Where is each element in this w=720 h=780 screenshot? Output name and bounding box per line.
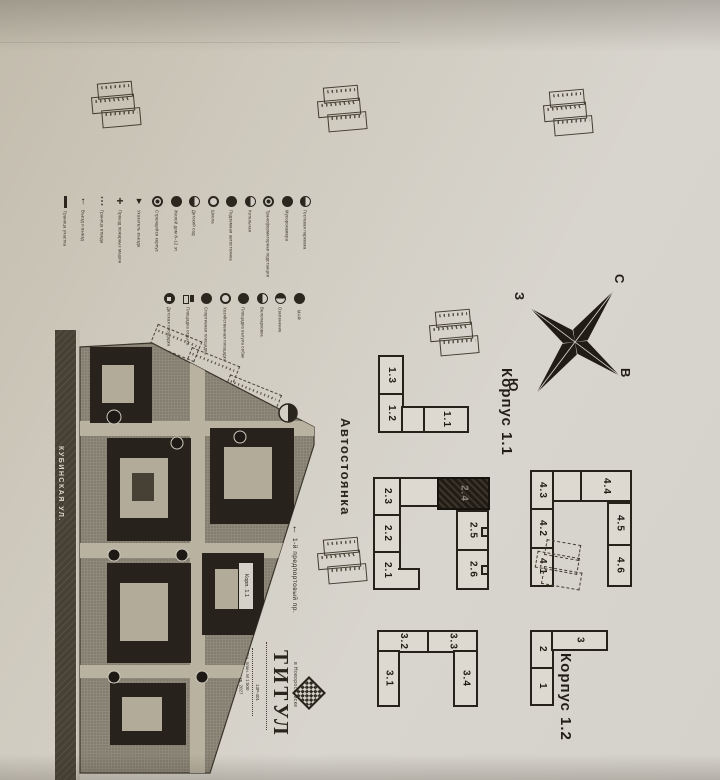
legend-label: Строящийся корпус [154, 210, 159, 252]
plan-marker [171, 437, 183, 449]
unit-cell: 3 [553, 632, 606, 649]
scheme-building2-foot [398, 568, 420, 590]
plan-marker [196, 671, 208, 683]
legend-label: Котельная [247, 210, 252, 232]
scheme-building2-left: 2.3 2.2 2.1 [373, 477, 401, 590]
unit-cell [554, 472, 582, 500]
legend-label: МАФ [296, 310, 301, 320]
unit-cell: 3.3 [429, 632, 477, 651]
circle-dot-icon [263, 196, 274, 207]
unit-cell: 1.3 [380, 357, 402, 395]
plan-marker [176, 549, 188, 561]
legend-item: Граница отвода [93, 196, 111, 346]
legend-label: Мусорокамера [284, 210, 289, 241]
scheme-building3-left: 3.1 [377, 650, 400, 707]
legend-item: Граница участка [56, 196, 74, 346]
unit-cell: 3.2 [379, 632, 429, 651]
building-sketch-dashed-icon [529, 538, 593, 599]
unit-number: 3.2 [398, 633, 408, 650]
legend-label: Детский сад [191, 210, 196, 236]
circle-filled-icon [226, 196, 237, 207]
plan-marker [108, 549, 120, 561]
unit-number: 2.1 [382, 562, 392, 579]
legend-label: Граница участка [62, 211, 67, 246]
unit-number: 1.2 [386, 405, 396, 422]
unit-cell [403, 408, 425, 431]
legend-label: Указатель въезда [136, 210, 141, 247]
unit-number: 2.3 [382, 488, 392, 505]
unit-cell: 4.5 [609, 504, 630, 546]
road-strip [55, 330, 76, 780]
unit-cell [398, 570, 418, 588]
circle-ring-icon [208, 196, 219, 207]
circle-half-icon [257, 293, 268, 304]
unit-cell: 2.3 [375, 479, 399, 516]
boundary-line-icon [64, 196, 67, 208]
unit-number: 2.4 [459, 485, 469, 502]
legend-label: Школа [210, 210, 215, 224]
unit-cell: 2 [532, 632, 552, 669]
circle-half-icon [245, 196, 256, 207]
entry-arrow-icon [78, 196, 89, 207]
unit-number: 3.4 [461, 670, 471, 687]
square-pair-icon [183, 293, 194, 304]
street-main-label: КУБИНСКАЯ УЛ. [57, 446, 64, 522]
circle-filled-icon [238, 293, 249, 304]
circle-square-icon [164, 293, 175, 304]
unit-cell: 2.1 [375, 553, 399, 588]
plan-marker [107, 410, 121, 424]
unit-number: 4.6 [615, 557, 625, 574]
circle-filled-icon [171, 196, 182, 207]
legend-item: Проезд пожарных машин [111, 196, 129, 346]
legend-label: Граница отвода [99, 210, 104, 243]
circle-ring-icon [220, 293, 231, 304]
compass-west-label: З [512, 292, 527, 300]
unit-number: 2.5 [468, 522, 478, 539]
triangle-marker-icon [134, 196, 145, 207]
plan-marker [234, 431, 246, 443]
circle-dot-icon [152, 196, 163, 207]
scanned-site-plan-sheet: Граница участка Въезд и выезд Граница от… [0, 0, 720, 780]
unit-cell: 4.4 [582, 472, 630, 500]
scheme-building3-right: 3.4 [453, 650, 478, 707]
unit-number: 2.2 [382, 525, 392, 542]
unit-number: 3.1 [384, 670, 394, 687]
unit-number: 4.2 [537, 520, 547, 537]
unit-cell: 2.2 [375, 516, 399, 553]
building-sketch-icon [426, 308, 486, 365]
unit-cell: 3.1 [379, 652, 398, 705]
unit-cell: 3.4 [455, 652, 476, 705]
scheme-korpus11-wing-b: 1.1 [401, 406, 469, 433]
legend-label: Трансформаторная подстанция [265, 210, 270, 277]
legend-label: Проезд пожарных машин [117, 210, 122, 263]
scheme-building4-right: 4.5 4.6 [607, 502, 632, 587]
paper-crease [0, 42, 400, 43]
building-sketch-icon [314, 84, 374, 141]
unit-number: 4.3 [537, 482, 547, 499]
balcony-notch [481, 565, 489, 575]
unit-number: 4.4 [601, 478, 611, 495]
legend-item: Въезд и выезд [74, 196, 92, 346]
scheme-building4-top: 4.4 [552, 470, 632, 502]
dashed-line-icon [97, 196, 108, 207]
site-plan-map [52, 325, 316, 780]
legend-label: Жилой дом 8–12 эт. [173, 210, 178, 252]
unit-number: 2 [537, 646, 547, 653]
unit-cell: 1.1 [425, 408, 467, 431]
building-sketch-icon [314, 536, 374, 593]
circle-filled-icon [282, 196, 293, 207]
unit-cell: 1 [532, 669, 552, 704]
legend-label: Въезд и выезд [80, 210, 85, 241]
legend-label: Подземная автостоянка [228, 210, 233, 261]
compass-east-label: В [618, 368, 633, 377]
circle-half-vertical-icon [275, 293, 286, 304]
korpus-1-1-label: Корпус 1.1 [498, 368, 515, 456]
parking-label: Автостоянка [338, 418, 353, 516]
unit-cell: 4.6 [609, 546, 630, 586]
unit-number: 1.1 [441, 411, 451, 428]
unit-number: 1.3 [386, 367, 396, 384]
unit-number: 3.3 [447, 633, 457, 650]
circle-half-icon [189, 196, 200, 207]
scheme-korpus12-top: 3 [551, 630, 608, 651]
scheme-building2-right: 2.5 2.6 [456, 510, 489, 590]
circle-filled-icon [201, 293, 212, 304]
korpus-1-2-label: Корпус 1.2 [557, 653, 574, 741]
legend-item: Указатель въезда [130, 196, 148, 346]
unit-cell: 4.3 [532, 472, 552, 510]
circle-half-icon [300, 196, 311, 207]
balcony-notch [481, 527, 489, 537]
building-sketch-icon [540, 88, 600, 145]
circle-filled-icon [294, 293, 305, 304]
compass-north-label: С [612, 274, 627, 283]
unit-cell: 1.2 [380, 395, 402, 431]
plan-marker [108, 671, 120, 683]
legend-label: Гостевая парковка [302, 210, 307, 250]
unit-number: 1 [537, 683, 547, 690]
unit-number: 4.5 [615, 515, 625, 532]
scheme-building2-dark-section: 2.4 [437, 477, 490, 510]
cross-mark-icon [115, 196, 126, 207]
unit-number: 2.6 [468, 561, 478, 578]
plan-callout-text: Корп. 1.1 [243, 574, 249, 597]
building-sketch-icon [88, 80, 148, 137]
unit-number: 3 [575, 637, 585, 644]
plan-callout: Корп. 1.1 [238, 562, 254, 610]
